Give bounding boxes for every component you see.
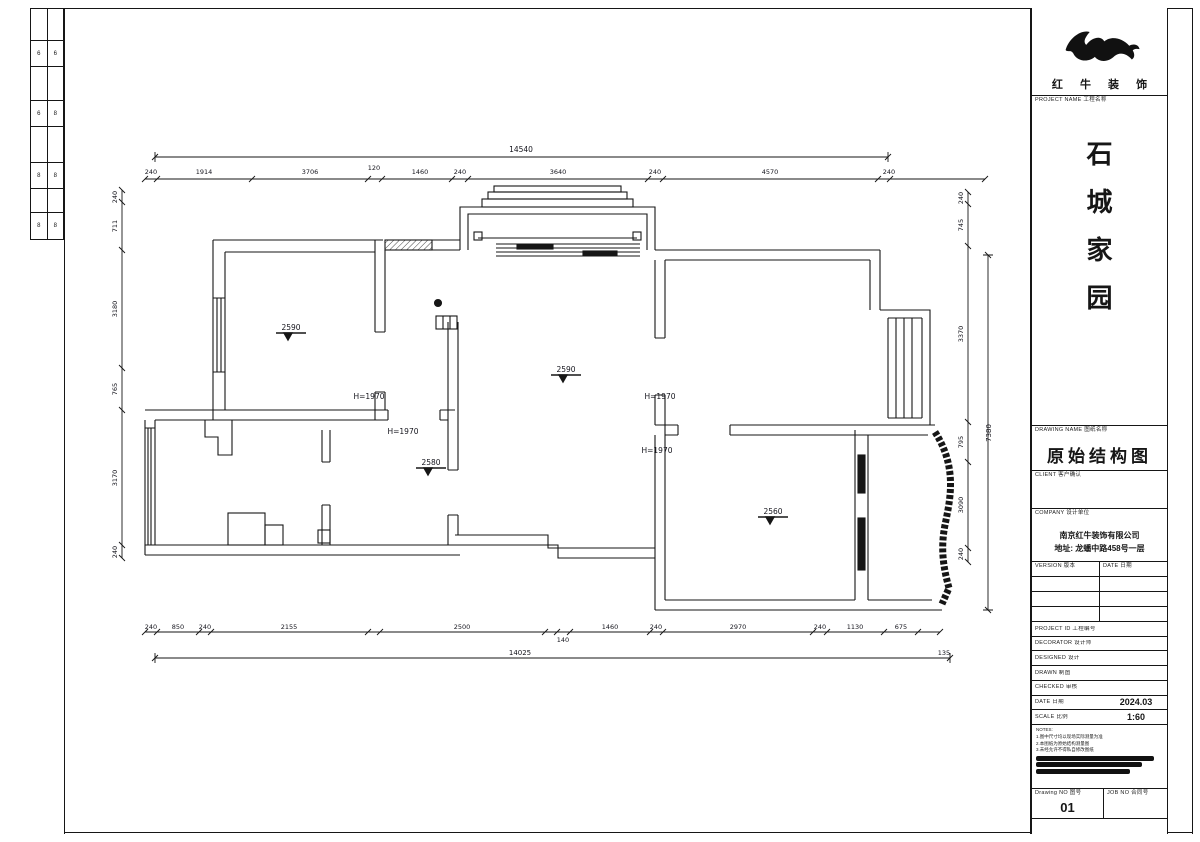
dim-right-overall: 7380	[985, 424, 993, 442]
company-address: 地址: 龙蟠中路458号一层	[1054, 543, 1144, 554]
client-label: CLIENT 客户确认	[1032, 471, 1167, 479]
redacted-text	[1036, 756, 1154, 761]
redacted-text	[1036, 762, 1142, 767]
ceiling-height-label: 2590	[556, 365, 575, 374]
dimension-label: 240	[957, 548, 965, 560]
beam-height-label: H=1970	[353, 392, 384, 401]
drawn-label: DRAWN 制图	[1032, 670, 1105, 677]
ceiling-height-label: 2590	[281, 323, 300, 332]
drawing-sheet: 6 6 6 8 8 8 8 8	[0, 0, 1200, 842]
dim-bottom-overall: 14025	[509, 649, 531, 657]
dimension-label: 1130	[847, 623, 864, 631]
dimension-label: 711	[111, 220, 119, 232]
drawing-no-label: Drawing NO 图号	[1032, 789, 1103, 797]
drawing-no-value: 01	[1032, 797, 1103, 818]
dimension-label: 240	[454, 168, 466, 176]
ceiling-height-label: 2560	[763, 507, 782, 516]
scale-label: SCALE 比例	[1032, 714, 1105, 721]
dimension-label: 240	[814, 623, 826, 631]
dimension-label: 240	[650, 623, 662, 631]
project-name-label: PROJECT NAME 工程名称	[1032, 96, 1167, 104]
dimension-label: 240	[145, 168, 157, 176]
drawing-number-row: Drawing NO 图号 01 JOB NO 合同号	[1032, 788, 1167, 818]
beam-height-label: H=1970	[641, 446, 672, 455]
project-id-label: PROJECT ID 工程编号	[1032, 626, 1105, 633]
project-name: 石 城 家 园	[1032, 113, 1167, 425]
version-label: VERSION 版本	[1032, 562, 1100, 576]
dimension-label: 240	[111, 546, 119, 558]
brand-name: 红 牛 装 饰	[1045, 76, 1154, 92]
dimension-label: 4570	[762, 168, 779, 176]
company-name: 南京红牛装饰有限公司	[1060, 530, 1140, 541]
dimension-label: 240	[957, 192, 965, 204]
dimension-label: 2500	[454, 623, 471, 631]
dimension-label: 240	[649, 168, 661, 176]
dimension-label: 240	[199, 623, 211, 631]
dimension-label: 1460	[602, 623, 619, 631]
date-value: 2024.03	[1105, 697, 1167, 707]
dimension-label: 140	[557, 636, 569, 644]
dimension-label: 1914	[196, 168, 213, 176]
beam-height-label: H=1970	[387, 427, 418, 436]
decorator-label: DECORATOR 设计师	[1032, 640, 1105, 647]
scale-value: 1:60	[1105, 712, 1167, 722]
job-no-label: JOB NO 合同号	[1104, 789, 1167, 797]
walls	[145, 186, 951, 610]
dimension-lines	[119, 152, 993, 663]
designed-label: DESIGNED 设计	[1032, 655, 1105, 662]
date-label: DATE 日期	[1032, 699, 1105, 706]
dimension-label: 795	[957, 436, 965, 448]
version-date-label: DATE 日期	[1100, 562, 1167, 576]
notes-block: NOTES: 1.图中尺寸均以现场实际测量为准 2.本图纸为原始结构测量图 3.…	[1032, 724, 1167, 788]
title-block-footer	[1032, 818, 1167, 834]
info-rows: PROJECT ID 工程编号 DECORATOR 设计师 DESIGNED 设…	[1032, 621, 1167, 724]
client-cell	[1032, 484, 1167, 508]
beam-height-label: H=1970	[644, 392, 675, 401]
dimension-label: 3170	[111, 470, 119, 487]
dimension-label: 3180	[111, 301, 119, 318]
dimension-label: 765	[111, 383, 119, 395]
drawing-name-label: DRAWING NAME 图纸名称	[1032, 426, 1167, 434]
dimension-label: 240	[111, 191, 119, 203]
dimension-label: 135	[938, 649, 950, 657]
dimension-label: 3090	[957, 497, 965, 514]
dimension-label: 3706	[302, 168, 319, 176]
checked-label: CHECKED 审核	[1032, 684, 1105, 691]
elevation-markers	[276, 333, 788, 524]
dimension-label: 240	[883, 168, 895, 176]
dim-top-overall: 14540	[509, 145, 533, 154]
brand-logo-cell: 红 牛 装 饰	[1032, 8, 1167, 95]
dimension-label: 120	[368, 164, 380, 172]
dimension-label: 745	[957, 219, 965, 231]
dimension-label: 850	[172, 623, 184, 631]
dimension-label: 1460	[412, 168, 429, 176]
dimension-label: 240	[145, 623, 157, 631]
bull-logo-icon	[1057, 24, 1143, 76]
dimension-label: 2970	[730, 623, 747, 631]
floor-plan: 1454024019143706120146024036402404570240…	[0, 0, 1200, 842]
dimension-label: 675	[895, 623, 907, 631]
company-info: 南京红牛装饰有限公司 地址: 龙蟠中路458号一层	[1032, 522, 1167, 561]
redacted-text	[1036, 769, 1130, 774]
ceiling-height-label: 2580	[421, 458, 440, 467]
dimension-label: 3370	[957, 326, 965, 343]
drawing-name: 原始结构图	[1032, 438, 1167, 470]
company-label: COMPANY 设计单位	[1032, 509, 1167, 517]
title-block: 红 牛 装 饰 PROJECT NAME 工程名称 石 城 家 园 DRAWIN…	[1030, 8, 1168, 834]
dimension-label: 2155	[281, 623, 298, 631]
version-table: VERSION 版本 DATE 日期	[1032, 561, 1167, 621]
plan-labels: 1454024019143706120146024036402404570240…	[111, 145, 993, 657]
dimension-label: 3640	[550, 168, 567, 176]
